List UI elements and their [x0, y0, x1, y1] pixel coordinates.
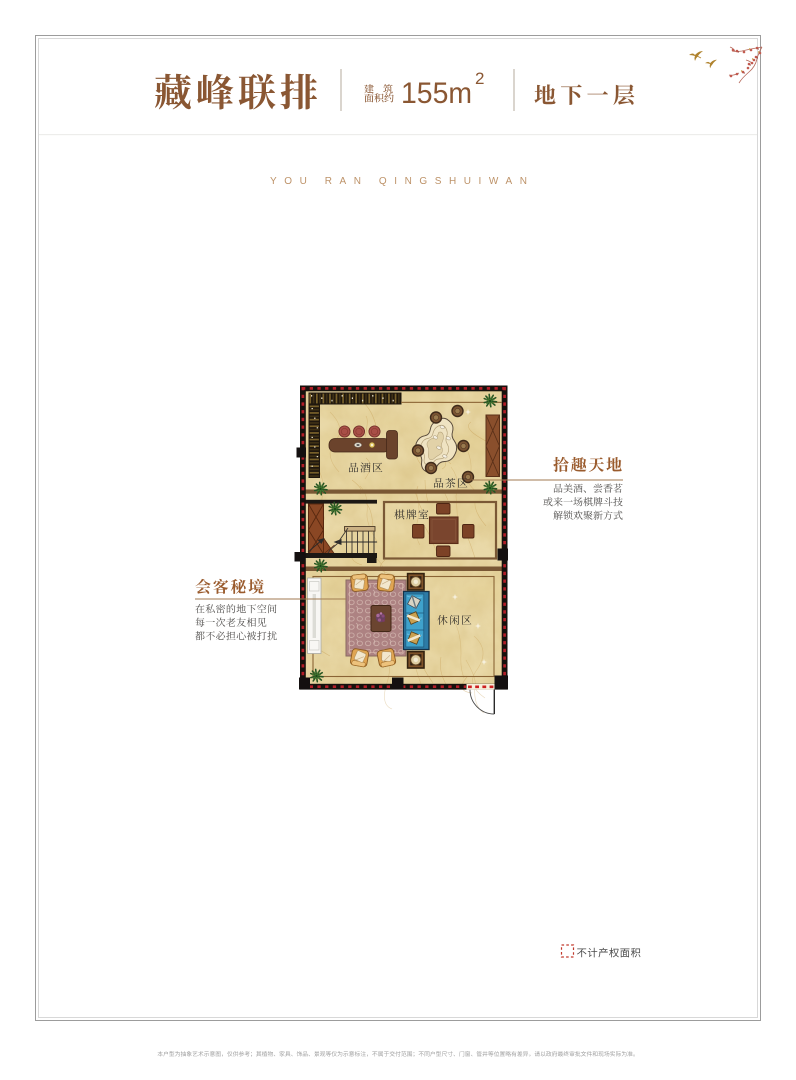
- svg-text:155m: 155m: [401, 77, 472, 110]
- svg-text:2: 2: [475, 69, 484, 88]
- svg-text:YOU RAN QINGSHUIWAN: YOU RAN QINGSHUIWAN: [270, 176, 533, 187]
